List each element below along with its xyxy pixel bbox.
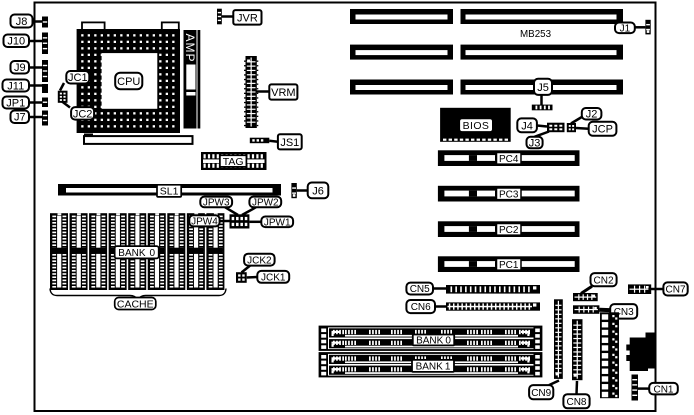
- svg-text:CACHE: CACHE: [117, 298, 154, 310]
- svg-text:BANK 0: BANK 0: [416, 336, 451, 347]
- svg-text:J4: J4: [521, 120, 533, 132]
- svg-text:PC1: PC1: [499, 260, 519, 271]
- svg-text:JCK1: JCK1: [261, 272, 286, 283]
- svg-text:SL1: SL1: [160, 186, 179, 198]
- svg-text:J7: J7: [14, 112, 26, 124]
- svg-text:PC2: PC2: [499, 225, 519, 236]
- svg-text:JVR: JVR: [237, 12, 258, 24]
- svg-text:PC4: PC4: [499, 154, 519, 165]
- svg-text:JPW1: JPW1: [264, 217, 291, 228]
- svg-text:CN7: CN7: [666, 285, 686, 296]
- svg-text:J8: J8: [16, 16, 28, 28]
- svg-text:CN8: CN8: [566, 397, 586, 408]
- svg-text:J3: J3: [529, 138, 541, 150]
- svg-text:TAG: TAG: [223, 156, 244, 168]
- svg-text:JC2: JC2: [73, 108, 93, 120]
- svg-text:JPW4: JPW4: [191, 216, 218, 227]
- svg-text:CN1: CN1: [653, 384, 673, 395]
- svg-text:J5: J5: [537, 82, 549, 94]
- svg-text:CPU: CPU: [117, 76, 140, 88]
- svg-text:JPW2: JPW2: [252, 198, 279, 209]
- svg-text:JC1: JC1: [68, 72, 88, 84]
- svg-text:J1: J1: [620, 23, 631, 34]
- svg-text:BIOS: BIOS: [463, 120, 490, 132]
- svg-text:BANK 0: BANK 0: [118, 248, 155, 259]
- svg-text:JPW3: JPW3: [203, 198, 230, 209]
- svg-text:CN9: CN9: [531, 388, 551, 399]
- svg-text:BANK 1: BANK 1: [416, 362, 451, 373]
- svg-text:CN6: CN6: [411, 302, 431, 313]
- svg-text:J2: J2: [586, 109, 598, 121]
- svg-text:PC3: PC3: [499, 189, 519, 200]
- svg-text:J10: J10: [7, 36, 25, 48]
- svg-text:MB253: MB253: [520, 29, 552, 40]
- svg-text:VRM: VRM: [271, 87, 295, 99]
- svg-text:JP1: JP1: [6, 97, 25, 109]
- svg-text:CN2: CN2: [594, 275, 614, 286]
- svg-text:J11: J11: [7, 80, 24, 92]
- svg-text:J9: J9: [14, 62, 26, 74]
- svg-text:CN5: CN5: [410, 284, 430, 295]
- svg-text:J6: J6: [312, 185, 324, 197]
- svg-text:JS1: JS1: [280, 137, 299, 149]
- svg-text:JCP: JCP: [592, 124, 613, 136]
- svg-text:AMP: AMP: [183, 34, 197, 63]
- svg-text:JCK2: JCK2: [247, 255, 272, 266]
